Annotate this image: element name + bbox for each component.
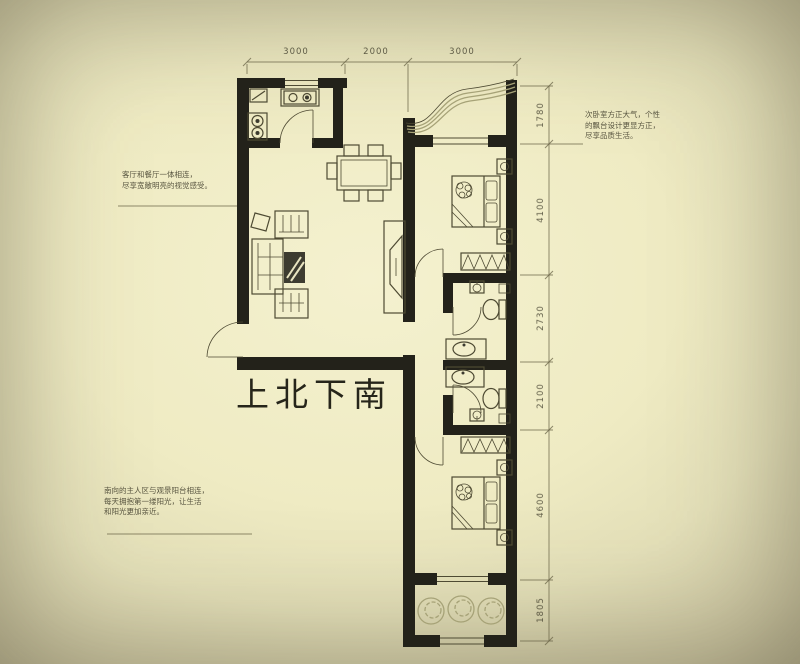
wardrobe-icon: [461, 253, 510, 270]
bed-icon: [452, 176, 500, 227]
washbasin-icon: [470, 409, 484, 421]
bedroom2-furniture: [452, 437, 512, 545]
floorplan-image: 3000 2000 3000 1780 4100 2730 2100 4600 …: [0, 0, 800, 664]
bay-window-curve: [406, 79, 516, 133]
plant-icon: [418, 598, 444, 624]
kitchen-sink-icon: [250, 89, 267, 102]
bed-icon: [452, 477, 500, 529]
note-line: 尽享品质生活。: [585, 131, 703, 142]
note-line: 尽享宽敞明亮的视觉感受。: [122, 181, 232, 192]
floorplan-drawing: [0, 0, 800, 664]
orientation-label: 上北下南: [236, 368, 408, 416]
dim-label-top-2: 2000: [354, 47, 398, 57]
note-line: 次卧室方正大气，个性: [585, 110, 703, 121]
side-table-icon: [251, 213, 270, 231]
dim-label-right-4: 2100: [536, 383, 546, 409]
plant-icon: [478, 598, 504, 624]
master-bedroom-note: 南向的主人区与观景阳台相连， 每天拥抱第一缕阳光，让生活 和阳光更加亲近。: [104, 486, 254, 518]
leader-lines: [107, 206, 252, 534]
living-room-note: 客厅和餐厅一体相连， 尽享宽敞明亮的视觉感受。: [122, 170, 232, 191]
sofa-icon: [252, 239, 283, 294]
wardrobe-icon: [461, 437, 510, 453]
armchair-top-icon: [275, 211, 308, 238]
dim-label-right-5: 4600: [536, 492, 546, 518]
dim-label-top-1: 3000: [274, 47, 318, 57]
kitchen-fixtures: [248, 89, 319, 140]
dining-table-icon: [327, 145, 401, 201]
dim-label-top-3: 3000: [440, 47, 484, 57]
note-line: 的飘台设计更显方正，: [585, 121, 703, 132]
stove-icon: [248, 113, 267, 140]
cooktop-icon: [281, 89, 319, 106]
secondary-bedroom-note: 次卧室方正大气，个性 的飘台设计更显方正， 尽享品质生活。: [585, 110, 703, 142]
note-line: 客厅和餐厅一体相连，: [122, 170, 232, 181]
bedroom1-furniture: [452, 159, 512, 270]
dim-label-right-6: 1805: [536, 597, 546, 623]
note-line: 和阳光更加亲近。: [104, 507, 254, 518]
bathroom1-door-arc: [453, 307, 481, 335]
toilet-icon: [483, 300, 506, 320]
tv-cabinet-icon: [384, 221, 405, 313]
dim-label-right-3: 2730: [536, 305, 546, 331]
note-line: 南向的主人区与观景阳台相连，: [104, 486, 254, 497]
bedroom2-door-arc: [415, 437, 443, 465]
bedroom1-door-arc: [415, 249, 443, 277]
entry-door-arc: [207, 322, 243, 357]
dim-label-right-2: 4100: [536, 197, 546, 223]
kitchen-door-arc: [280, 110, 313, 143]
plant-icon: [448, 596, 474, 622]
walls: [237, 78, 517, 647]
balcony-plants: [418, 596, 504, 624]
coffee-table-icon: [284, 252, 305, 283]
bathroom2-fixtures: [446, 367, 510, 423]
living-room-furniture: [251, 211, 405, 318]
armchair-bottom-icon: [275, 289, 308, 318]
toilet-icon: [483, 389, 506, 409]
note-line: 每天拥抱第一缕阳光，让生活: [104, 497, 254, 508]
dim-label-right-1: 1780: [536, 102, 546, 128]
vanity-icon: [446, 339, 486, 359]
